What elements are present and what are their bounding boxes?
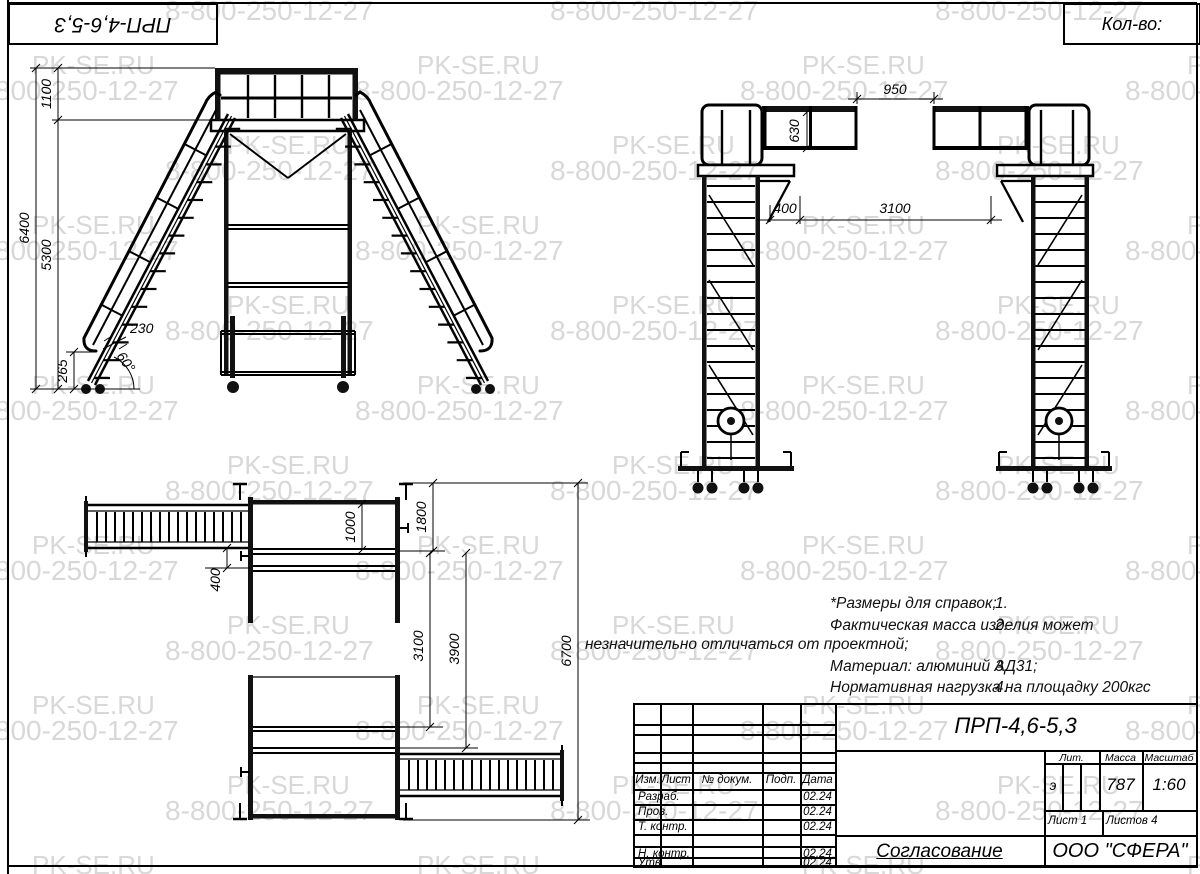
front-left-kneerail — [93, 110, 216, 345]
dim-3100-plan: 3100 — [410, 630, 426, 661]
corner-designation-stamp: ПРП-4,6-5,3 — [8, 3, 218, 45]
note-item: 4.Нормативная нагрузка на площадку 200кг… — [585, 678, 1169, 698]
dim-6700: 6700 — [558, 635, 574, 666]
front-right-stringer-inner — [345, 116, 485, 383]
front-wheel — [471, 384, 481, 394]
tb-line — [835, 835, 1196, 837]
side-left-guardrail-posts — [722, 110, 750, 165]
tb-col-data: Дата — [800, 774, 835, 786]
side-right-base — [996, 466, 1112, 471]
plan-top-edge — [253, 500, 395, 505]
note-number: 3. — [790, 657, 830, 677]
tb-line — [635, 762, 835, 764]
side-right-guardrail-posts — [1041, 110, 1073, 165]
plan-left-ladder-cap — [84, 501, 88, 552]
plan-left-ladder-rungs — [97, 512, 241, 542]
side-right-rail-posts — [934, 106, 1026, 150]
tb-line — [1044, 810, 1196, 812]
tb-row-label: Пров. — [638, 806, 668, 818]
tb-line — [1062, 763, 1064, 810]
note-text: *Размеры для справок; — [830, 595, 997, 612]
side-left-base — [678, 466, 794, 471]
plan-top-side-rail — [248, 497, 253, 623]
front-tower-braces — [228, 134, 348, 287]
front-wheel — [227, 381, 239, 393]
tb-line — [635, 834, 835, 836]
notes-block: 1.*Размеры для справок; 2.Фактическая ма… — [585, 594, 1169, 700]
plan-bottom-stubs — [240, 767, 406, 820]
dim-230: 230 — [129, 320, 154, 336]
dim-3900: 3900 — [446, 633, 462, 664]
caster-wheel — [1042, 483, 1053, 494]
tb-col-izm: Изм. — [635, 774, 660, 786]
note-number: 1. — [790, 594, 830, 614]
caster-wheel — [693, 483, 704, 494]
dim-60deg: 60° — [114, 349, 139, 376]
note-number: 2. — [790, 616, 830, 636]
dim-950: 950 — [883, 81, 907, 97]
dim-6400: 6400 — [16, 212, 32, 243]
tb-mass-value: 787 — [1099, 775, 1142, 795]
front-tower-base — [221, 331, 355, 375]
tb-designation: ПРП-4,6-5,3 — [835, 713, 1196, 739]
caster-wheel — [753, 483, 764, 494]
dim-630: 630 — [786, 119, 802, 143]
side-left-rail-posts — [765, 106, 856, 150]
dim-400-plan: 400 — [207, 568, 223, 592]
note-number: 4. — [790, 678, 830, 698]
side-left-caster-stems — [698, 471, 758, 482]
tb-row-label: Т. контр. — [638, 821, 688, 833]
plan-view: 1000 1800 400 3100 3900 6700 — [84, 479, 590, 824]
tb-line — [1102, 810, 1104, 835]
front-left-stringer-inner — [92, 116, 232, 383]
side-right-winch-hub — [1055, 417, 1063, 425]
tb-scale-value: 1:60 — [1142, 775, 1196, 795]
caster-wheel — [1088, 483, 1099, 494]
tb-row-date: 02.24 — [800, 806, 835, 818]
tb-company: ООО "СФЕРА" — [1044, 840, 1196, 863]
side-left-guardrail — [702, 105, 762, 165]
title-block: Изм. Лист № докум. Подп. Дата Разраб. 02… — [633, 703, 1198, 868]
caster-wheel — [1028, 483, 1039, 494]
tb-row-date: 02.24 — [800, 791, 835, 803]
dim-3100-side: 3100 — [879, 200, 910, 216]
tb-row-date: 02.24 — [800, 857, 835, 869]
tb-col-docnum: № докум. — [692, 774, 762, 786]
tb-sheet-info: Лист 1 — [1048, 815, 1087, 827]
front-right-kneerail — [360, 110, 483, 345]
tb-line — [635, 734, 835, 736]
plan-bottom-members — [253, 727, 395, 753]
front-view: 1100 6400 5300 265 230 60° — [16, 64, 495, 394]
plan-top-side-rail — [395, 497, 400, 623]
front-wheel — [337, 381, 349, 393]
side-right-platform — [997, 165, 1093, 176]
tb-scale-label: Масштаб — [1142, 752, 1196, 764]
side-left-platform — [698, 165, 794, 176]
side-right-tower-post — [1031, 176, 1036, 468]
dim-5300: 5300 — [38, 239, 54, 270]
plan-right-ladder-cap — [560, 750, 564, 801]
note-item: 3.Материал: алюминий АД31; — [585, 657, 1169, 677]
note-item: 2.Фактическая масса изделия может незнач… — [585, 616, 1169, 655]
quantity-label: Кол-во: — [1102, 14, 1162, 35]
tb-sheets-info: Листов 4 — [1106, 815, 1157, 827]
tb-mass-label: Масса — [1099, 752, 1142, 764]
tb-row-label: Утв. — [638, 857, 664, 869]
tb-row-label: Разраб. — [638, 791, 680, 803]
front-right-treads — [336, 129, 482, 378]
tb-line — [635, 752, 835, 754]
tb-row-date: 02.24 — [800, 821, 835, 833]
tb-col-podp: Подп. — [762, 774, 800, 786]
tb-line — [635, 724, 835, 726]
side-left-tower-post — [702, 176, 707, 468]
dim-400-side: 400 — [773, 200, 797, 216]
dim-265: 265 — [54, 359, 70, 384]
caster-wheel — [1074, 483, 1085, 494]
corner-designation-text: ПРП-4,6-5,3 — [55, 12, 172, 36]
front-guardrail-toprail — [215, 68, 358, 75]
front-left-treads — [94, 129, 240, 378]
note-item: 1.*Размеры для справок; — [585, 594, 1169, 614]
front-dim-lines — [30, 64, 215, 393]
front-left-handrail — [84, 92, 220, 351]
front-tower-post-left — [224, 131, 229, 376]
front-right-handrail — [356, 92, 492, 351]
side-right-caster-stems — [1033, 471, 1093, 482]
front-adjustable-leg-left — [230, 316, 235, 378]
side-right-tower-post — [1085, 176, 1090, 468]
note-text: Нормативная нагрузка на площадку 200кгс — [830, 679, 1151, 696]
front-tower-post-right — [348, 131, 353, 376]
tb-lit-label: Лит. — [1044, 752, 1099, 764]
dim-1100: 1100 — [38, 79, 54, 109]
caster-wheel — [739, 483, 750, 494]
front-wheel — [485, 384, 495, 394]
caster-wheel — [707, 483, 718, 494]
dim-1800: 1800 — [413, 501, 429, 532]
note-text: Фактическая масса изделия может незначит… — [585, 617, 1094, 654]
note-text: Материал: алюминий АД31; — [830, 658, 1037, 675]
tb-col-list: Лист — [660, 774, 692, 786]
plan-top-members — [253, 549, 395, 571]
tb-lit-value: э — [1044, 777, 1062, 793]
plan-bottom-edge — [253, 814, 395, 819]
quantity-box: Кол-во: — [1063, 3, 1200, 45]
plan-bottom-side-rail — [248, 675, 253, 820]
front-adjustable-leg-right — [341, 316, 346, 378]
dim-1000: 1000 — [342, 511, 358, 542]
side-right-guardrail — [1029, 105, 1089, 165]
side-view: 950 630 400 3100 — [678, 81, 1112, 494]
drawing-sheet: 1100 6400 5300 265 230 60° — [0, 0, 1200, 874]
tb-line — [1080, 763, 1082, 810]
plan-right-ladder-rungs — [409, 760, 553, 790]
side-left-winch-hub — [727, 417, 735, 425]
tb-approval: Согласование — [835, 841, 1044, 863]
